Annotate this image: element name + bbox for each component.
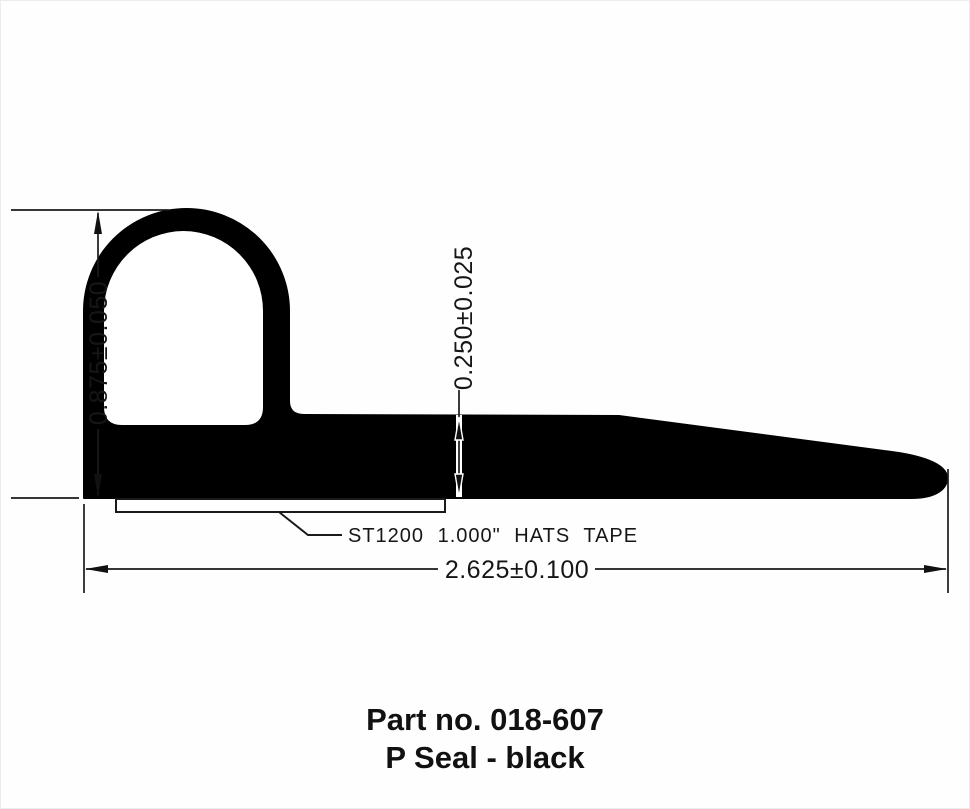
caption: Part no. 018-607 P Seal - black	[366, 702, 604, 775]
thickness-dim-label: 0.250±0.025	[450, 246, 478, 390]
tape-leader-line	[279, 512, 342, 535]
height-arrow-up-icon	[94, 211, 102, 234]
width-arrow-left-icon	[85, 565, 108, 573]
tape-label: ST1200 1.000" HATS TAPE	[348, 525, 638, 547]
seal-profile-group	[84, 209, 947, 498]
drawing-canvas: ST1200 1.000" HATS TAPE 0.875±0.050 0.25…	[0, 0, 970, 809]
hats-tape-group: ST1200 1.000" HATS TAPE	[116, 499, 638, 547]
seal-cavity	[104, 231, 263, 425]
width-dim-label: 2.625±0.100	[445, 556, 589, 584]
technical-drawing: ST1200 1.000" HATS TAPE 0.875±0.050 0.25…	[1, 1, 970, 809]
seal-description: P Seal - black	[385, 740, 585, 775]
hats-tape	[116, 499, 445, 512]
width-arrow-right-icon	[924, 565, 947, 573]
height-dim-label: 0.875±0.050	[85, 281, 113, 425]
part-number: Part no. 018-607	[366, 702, 604, 737]
